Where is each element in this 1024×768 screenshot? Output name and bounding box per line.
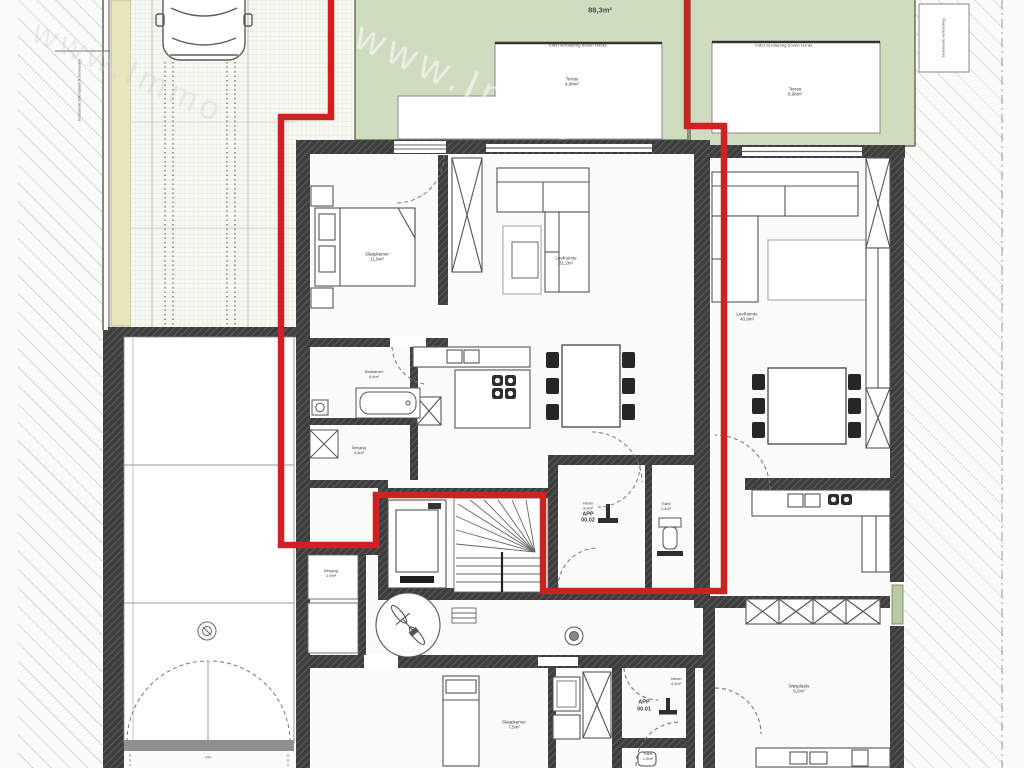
living-right-label: Leefruimte40,9m² bbox=[736, 312, 757, 323]
kitchen-1 bbox=[413, 347, 530, 428]
coffee-table-icon bbox=[512, 242, 538, 278]
floor-plan-drawing: www.Immo www.Immo bbox=[0, 0, 1024, 768]
bathroom-label: Badkamer4,4m² bbox=[365, 370, 383, 380]
wardrobe-icon bbox=[583, 672, 611, 738]
floor-plan: www.Immo www.Immo 88,3m² Tuin Tuin luife… bbox=[0, 0, 1024, 768]
garage-west-wall bbox=[103, 330, 124, 768]
laundry-label: Wasplaats6,2m² bbox=[789, 684, 810, 695]
laundry-counter bbox=[756, 748, 890, 767]
garage-door-dimension: 240 bbox=[205, 756, 212, 761]
toilet-00-02-label: Toilet1,4m² bbox=[661, 502, 671, 512]
rug bbox=[768, 240, 866, 300]
doormat-icon bbox=[452, 608, 476, 623]
hall-00-01-small-label: Inkom4,1m² bbox=[671, 677, 682, 687]
coat-rack-icon bbox=[598, 504, 618, 523]
sink-icon bbox=[805, 494, 820, 507]
garage-threshold bbox=[124, 740, 294, 751]
double-bed-icon bbox=[315, 208, 415, 286]
nightstand-icon bbox=[311, 186, 333, 206]
hall-00-02 bbox=[558, 465, 640, 588]
app-00-01-label: APP00.01 bbox=[637, 699, 651, 712]
door-swing bbox=[598, 465, 640, 507]
storage-label: Berging4,8m² bbox=[352, 446, 366, 456]
terrace-right-label: Terras8,08m² bbox=[788, 87, 802, 98]
storage-1 bbox=[310, 430, 338, 458]
toilet-00-01-label: Toilet1,5m² bbox=[643, 752, 653, 762]
bedroom-1-label: Slaapkamer11,8m² bbox=[365, 252, 389, 263]
nightstand-icon bbox=[311, 288, 333, 308]
bedroom-2-label: Slaapkamer7,5m² bbox=[502, 720, 526, 731]
garage bbox=[103, 327, 298, 768]
garden-left-clipped-label: Tuin bbox=[464, 0, 475, 1]
terrace-left-caption: luifel verdieping boven terras bbox=[549, 44, 606, 49]
single-bed-icon bbox=[443, 676, 479, 766]
site-note-right: bestaande verharding bbox=[942, 19, 947, 58]
dining-1 bbox=[546, 345, 635, 427]
bedroom-1-furniture bbox=[311, 158, 482, 308]
kitchen-counter bbox=[752, 490, 890, 516]
coat-rack-icon bbox=[659, 698, 677, 715]
staircase-icon bbox=[454, 498, 548, 592]
door-swing bbox=[624, 668, 658, 700]
garage-front-wall bbox=[108, 327, 298, 337]
door-swing bbox=[715, 688, 761, 734]
toilet-tank bbox=[659, 518, 681, 527]
terrace-left-label: Terras9,08m² bbox=[565, 77, 579, 88]
hall-00-02-label: Inkom3,9m² APP00.02 bbox=[581, 502, 595, 525]
terrace-right-caption: luifel verdieping boven terras bbox=[755, 44, 812, 49]
dining-table-icon bbox=[768, 368, 846, 444]
door-swing bbox=[558, 548, 598, 588]
sink-icon bbox=[447, 350, 462, 363]
bathtub-icon bbox=[356, 388, 420, 418]
bicycle-icon bbox=[376, 593, 440, 657]
wardrobe-icon bbox=[452, 158, 482, 272]
cabinet-icon bbox=[553, 715, 580, 739]
toilet-00-02 bbox=[657, 518, 683, 556]
right-apartment bbox=[712, 158, 890, 767]
site-note-left: bestaande betonplaat te behouden bbox=[78, 59, 83, 121]
corridor bbox=[376, 593, 583, 657]
toilet-icon bbox=[663, 527, 677, 549]
elevator-icon bbox=[388, 500, 446, 588]
common-storage-label: Berging1,9m² bbox=[324, 569, 338, 579]
drain-icon bbox=[565, 627, 583, 645]
sink-icon bbox=[464, 350, 479, 363]
bathroom-1 bbox=[312, 388, 420, 418]
dining-table-icon bbox=[562, 345, 620, 427]
living-1-furniture bbox=[497, 168, 589, 294]
garden-right-clipped-label: Tuin bbox=[839, 0, 850, 1]
pantry-cabinet-icon bbox=[417, 397, 441, 425]
laundry-rack-icon bbox=[746, 599, 880, 624]
sink-icon bbox=[788, 494, 803, 507]
rear-door bbox=[892, 585, 903, 624]
wardrobe-column bbox=[866, 158, 890, 448]
site-boundary-left-hatch bbox=[18, 0, 110, 768]
living-1-label: Leefruimte31,2m² bbox=[555, 256, 576, 267]
kitchen-right bbox=[752, 490, 890, 572]
car-icon bbox=[156, 0, 252, 60]
site-boundary-right-hatch bbox=[904, 0, 1004, 768]
garden-area-label: 88,3m² bbox=[588, 6, 612, 15]
washbasin-icon bbox=[312, 400, 328, 415]
